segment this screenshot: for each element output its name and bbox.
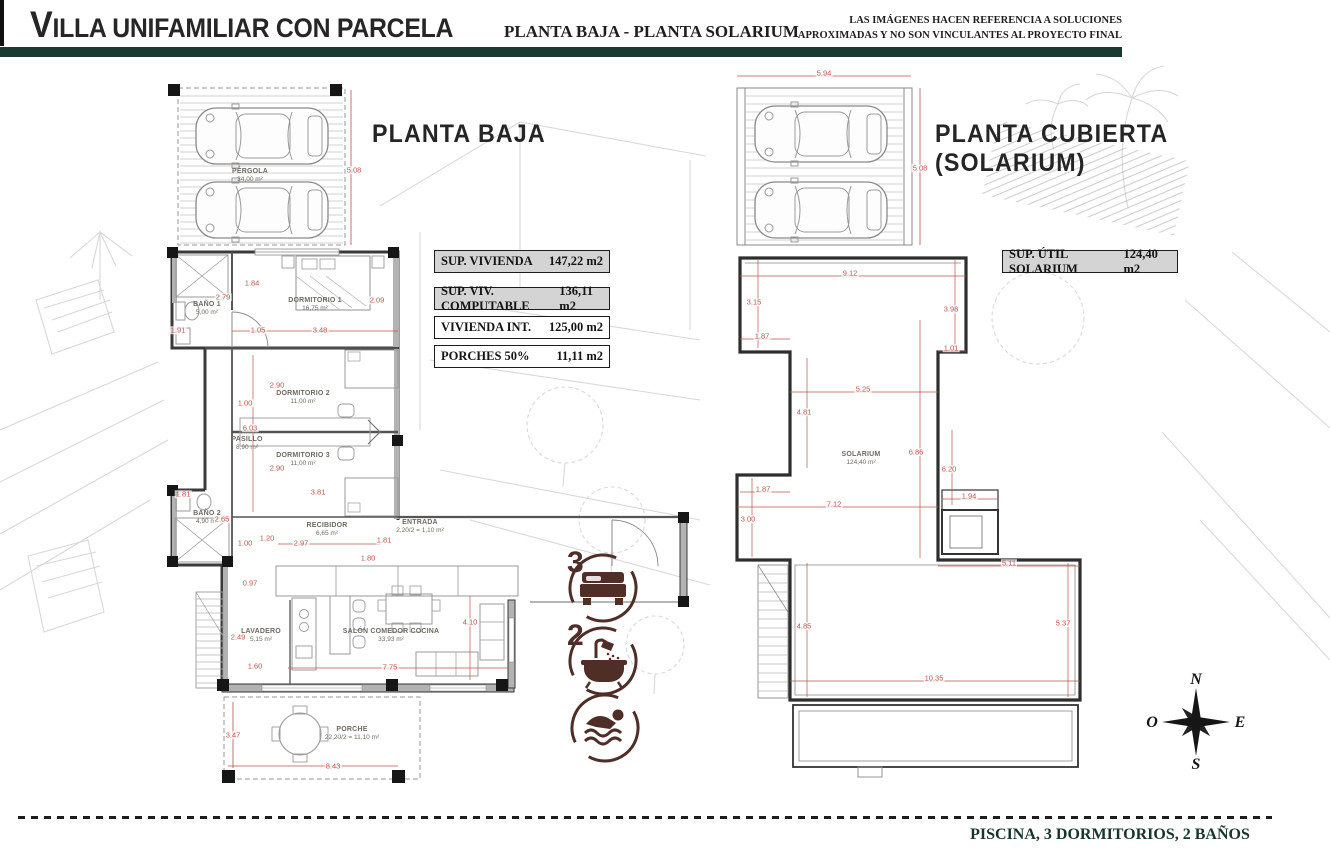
svg-text:N: N bbox=[1189, 671, 1203, 688]
right-plan-title-line1: PLANTA CUBIERTA bbox=[935, 120, 1168, 148]
left-plan-title: PLANTA BAJA bbox=[372, 120, 546, 149]
dimension-label: 5.11 bbox=[1001, 559, 1017, 567]
right-plan-title: PLANTA CUBIERTA (SOLARIUM) bbox=[935, 120, 1168, 178]
room-label: ENTRADA2,20/2 = 1,10 m² bbox=[396, 519, 444, 535]
dimension-label: 6.03 bbox=[242, 424, 259, 432]
table-row-value: 147,22 m2 bbox=[549, 254, 603, 269]
dimension-label: 3.47 bbox=[225, 731, 242, 739]
dimension-label: 5.08 bbox=[912, 164, 929, 172]
room-label: PÉRGOLA34,00 m² bbox=[232, 168, 268, 184]
dimension-label: 3.15 bbox=[746, 298, 763, 306]
corner-mark bbox=[0, 0, 4, 46]
pergola-right bbox=[737, 76, 920, 245]
svg-text:O: O bbox=[1146, 714, 1158, 731]
table-row: SUP. ÚTIL SOLARIUM124,40 m2 bbox=[1002, 250, 1178, 273]
dimension-label: 7.12 bbox=[826, 500, 843, 508]
surface-table-right: SUP. ÚTIL SOLARIUM124,40 m2 bbox=[1002, 250, 1178, 279]
dimension-label: 3.00 bbox=[740, 515, 757, 523]
surface-table-left: SUP. VIVIENDA147,22 m2SUP. VIV. COMPUTAB… bbox=[434, 250, 610, 374]
dimension-label: 3.48 bbox=[312, 326, 329, 334]
accent-bar bbox=[0, 47, 1122, 57]
dimension-label: 6.20 bbox=[941, 465, 958, 473]
dimension-label: 1.60 bbox=[247, 662, 264, 670]
disclaimer: LAS IMÁGENES HACEN REFERENCIA A SOLUCION… bbox=[702, 13, 1122, 43]
bed-icon bbox=[580, 572, 626, 605]
dimension-label: 1.84 bbox=[244, 279, 261, 287]
swimmer-icon bbox=[585, 710, 624, 745]
disclaimer-line-2: APROXIMADAS Y NO SON VINCULANTES AL PROY… bbox=[702, 28, 1122, 43]
dimension-label: 5.25 bbox=[855, 385, 872, 393]
dimension-label: 1.81 bbox=[376, 536, 393, 544]
dimension-label: 1.01 bbox=[943, 344, 960, 352]
dimension-label: 1.80 bbox=[360, 554, 377, 562]
bedroom-count: 3 bbox=[567, 546, 584, 579]
table-row: PORCHES 50%11,11 m2 bbox=[434, 345, 610, 368]
dimension-label: 4.10 bbox=[462, 618, 479, 626]
compass-rose: N E S O bbox=[1146, 671, 1245, 773]
dimension-label: 9.12 bbox=[842, 269, 859, 277]
table-row-value: 125,00 m2 bbox=[549, 320, 603, 335]
dimension-label: 8.43 bbox=[325, 762, 342, 770]
table-row: SUP. VIVIENDA147,22 m2 bbox=[434, 250, 610, 273]
house-left-plan bbox=[167, 247, 689, 783]
dimension-label: 6.86 bbox=[908, 448, 925, 456]
svg-text:S: S bbox=[1192, 756, 1201, 773]
pergola-left bbox=[168, 84, 351, 245]
dimension-label: 1.87 bbox=[755, 485, 772, 493]
room-label: LAVADERO5,15 m² bbox=[241, 628, 281, 644]
right-plan-title-line2: (SOLARIUM) bbox=[935, 149, 1086, 177]
dimension-label: 2.09 bbox=[369, 296, 386, 304]
dimension-label: 4.81 bbox=[796, 408, 813, 416]
dimension-label: 5.08 bbox=[346, 166, 363, 174]
table-row-label: SUP. VIVIENDA bbox=[441, 254, 533, 269]
bathroom-count: 2 bbox=[567, 619, 584, 652]
dimension-label: 1.05 bbox=[250, 326, 267, 334]
table-row: VIVIENDA INT.125,00 m2 bbox=[434, 316, 610, 339]
table-row-label: PORCHES 50% bbox=[441, 349, 530, 364]
dimension-label: 2.90 bbox=[269, 464, 286, 472]
dimension-label: 5.94 bbox=[816, 69, 833, 77]
table-row: SUP. VIV. COMPUTABLE136,11 m2 bbox=[434, 287, 610, 310]
dimension-label: 2.97 bbox=[293, 539, 310, 547]
table-row-value: 124,40 m2 bbox=[1123, 247, 1171, 277]
dimension-label: 7.75 bbox=[382, 663, 399, 671]
table-row-label: SUP. VIV. COMPUTABLE bbox=[441, 284, 559, 314]
room-label: RECIBIDOR6,65 m² bbox=[306, 522, 347, 538]
table-row-label: VIVIENDA INT. bbox=[441, 320, 531, 335]
dimension-label: 1.00 bbox=[237, 539, 254, 547]
table-row-value: 11,11 m2 bbox=[556, 349, 603, 364]
dimension-label: 1.00 bbox=[237, 399, 254, 407]
page-title: VILLA UNIFAMILIAR CON PARCELA bbox=[30, 4, 453, 46]
dimension-label: 1.81 bbox=[175, 490, 192, 498]
dimension-label: 2.90 bbox=[269, 381, 286, 389]
dimension-label: 3.98 bbox=[943, 305, 960, 313]
feature-bathrooms: 2 bbox=[558, 616, 648, 706]
dimension-label: 0.97 bbox=[242, 579, 259, 587]
room-label: BAÑO 15,00 m² bbox=[193, 301, 221, 317]
dimension-label: 2.79 bbox=[215, 293, 232, 301]
plan-sheet: { "header": { "title": "VILLA UNIFAMILIA… bbox=[0, 0, 1330, 864]
dimension-label: 5.37 bbox=[1055, 619, 1072, 627]
disclaimer-line-1: LAS IMÁGENES HACEN REFERENCIA A SOLUCION… bbox=[702, 13, 1122, 28]
room-label: SOLARIUM124,40 m² bbox=[842, 451, 881, 467]
feature-pool bbox=[560, 683, 650, 773]
dimension-label: 1.87 bbox=[754, 332, 771, 340]
room-label: DORMITORIO 211,00 m² bbox=[276, 390, 330, 406]
footer-summary: PISCINA, 3 DORMITORIOS, 2 BAÑOS bbox=[960, 826, 1260, 844]
room-label: PORCHE22,20/2 = 11,10 m² bbox=[325, 726, 379, 742]
bath-icon bbox=[581, 640, 627, 688]
table-row-label: SUP. ÚTIL SOLARIUM bbox=[1009, 247, 1123, 277]
table-row-value: 136,11 m2 bbox=[559, 284, 603, 314]
solarium-plan bbox=[737, 258, 1080, 777]
room-label: DORMITORIO 116,75 m² bbox=[288, 297, 342, 313]
dimension-label: 10.35 bbox=[924, 674, 945, 682]
footer-dashed-line bbox=[18, 816, 1272, 819]
dimension-label: 2.65 bbox=[214, 515, 231, 523]
room-label: PASILLO8,90 m² bbox=[231, 436, 262, 452]
dimension-label: 1.94 bbox=[961, 492, 978, 500]
dimension-label: 4.85 bbox=[796, 622, 813, 630]
room-label: SALÓN COMEDOR COCINA33,93 m² bbox=[343, 628, 440, 644]
dimension-label: 3.81 bbox=[310, 488, 327, 496]
svg-text:E: E bbox=[1234, 714, 1246, 731]
dimension-label: 2.49 bbox=[230, 633, 247, 641]
dimension-label: 1.20 bbox=[259, 534, 276, 542]
dimension-label: 1.91 bbox=[170, 326, 187, 334]
